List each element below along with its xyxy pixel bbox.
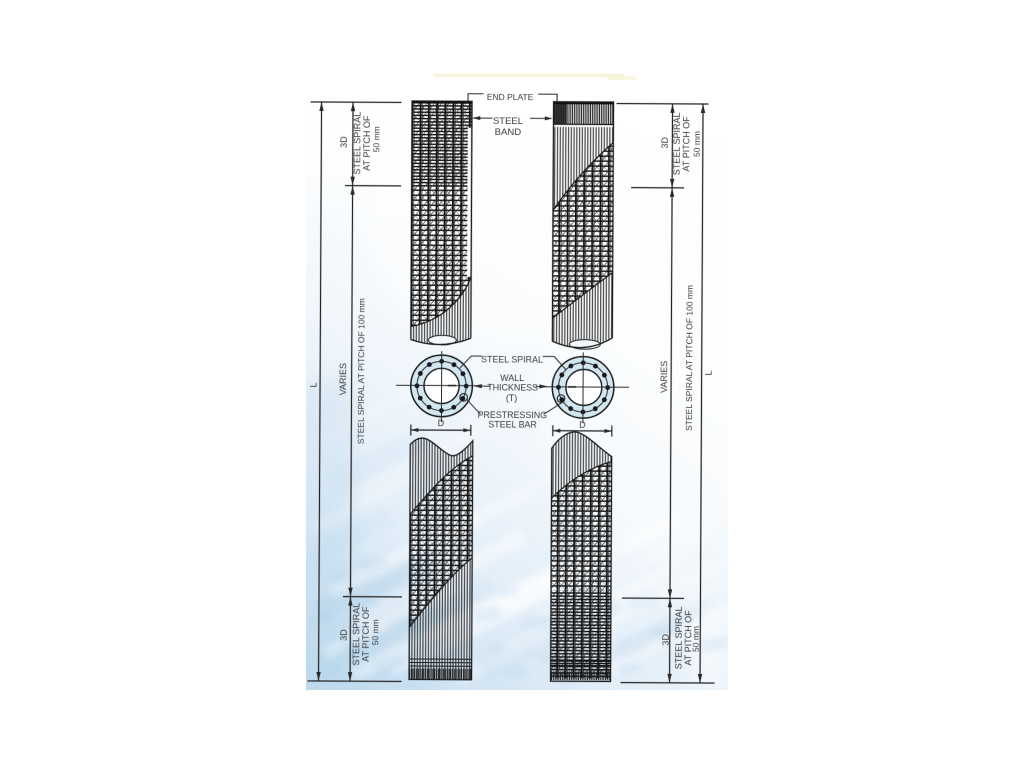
- svg-text:50 mm: 50 mm: [371, 126, 381, 152]
- svg-text:3D: 3D: [339, 629, 349, 641]
- svg-text:STEEL SPIRAL AT PITCH OF 100 m: STEEL SPIRAL AT PITCH OF 100 mm: [684, 285, 695, 431]
- svg-text:VARIES: VARIES: [659, 361, 669, 393]
- svg-text:STEEL BAR: STEEL BAR: [488, 419, 537, 429]
- svg-text:3D: 3D: [661, 634, 671, 646]
- svg-text:(T): (T): [506, 393, 517, 403]
- svg-text:AT PITCH OF: AT PITCH OF: [681, 116, 691, 172]
- svg-text:WALL: WALL: [500, 373, 524, 383]
- svg-text:STEEL: STEEL: [493, 116, 523, 127]
- svg-text:50 mm: 50 mm: [692, 131, 702, 157]
- svg-text:L: L: [309, 382, 319, 387]
- svg-text:3D: 3D: [339, 136, 349, 148]
- svg-text:50 mm: 50 mm: [691, 626, 701, 652]
- svg-text:3D: 3D: [660, 137, 670, 149]
- svg-text:VARIES: VARIES: [338, 363, 348, 395]
- svg-text:THICKNESS: THICKNESS: [487, 382, 538, 392]
- svg-text:L: L: [704, 370, 714, 375]
- svg-text:D: D: [579, 420, 586, 430]
- svg-text:STEEL SPIRAL AT PITCH OF 100 m: STEEL SPIRAL AT PITCH OF 100 mm: [356, 298, 367, 444]
- svg-text:END PLATE: END PLATE: [487, 92, 534, 102]
- svg-text:STEEL SPIRAL: STEEL SPIRAL: [481, 354, 543, 364]
- svg-text:50 mm: 50 mm: [370, 619, 380, 645]
- svg-text:D: D: [438, 418, 445, 428]
- svg-text:BAND: BAND: [495, 127, 522, 138]
